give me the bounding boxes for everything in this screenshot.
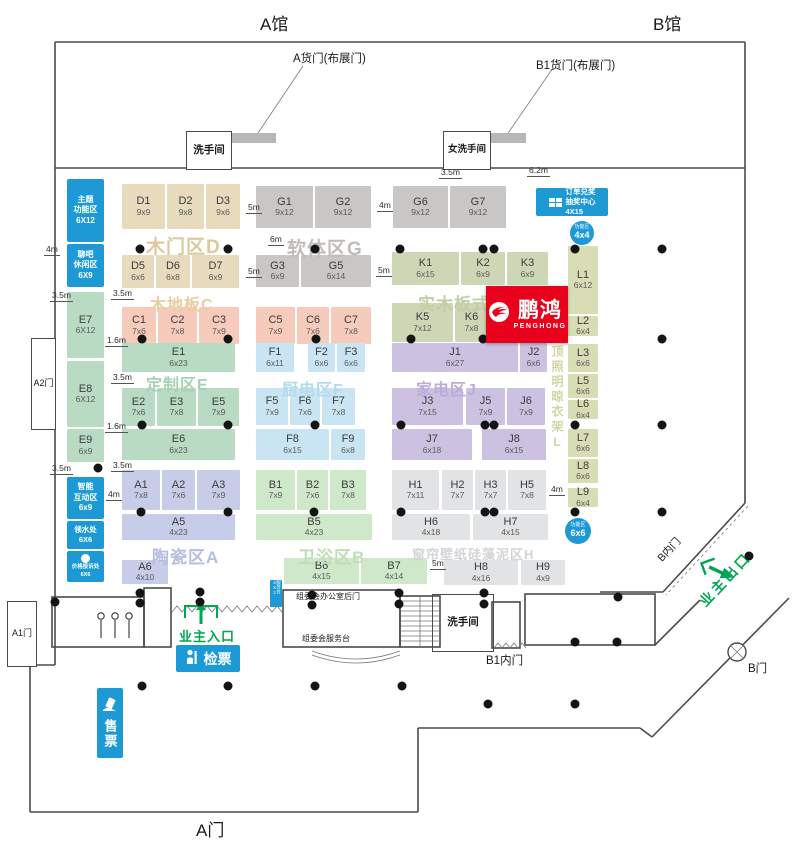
column-dot-20 xyxy=(571,421,580,430)
committee-office-backdoor-label: 组委会办公室后门 xyxy=(296,591,360,602)
gate-a2: A2门 xyxy=(31,338,56,430)
column-dot-30 xyxy=(94,464,103,473)
column-dot-38 xyxy=(308,601,317,610)
committee-service-desk-label: 组委会服务台 xyxy=(302,633,350,644)
ticket-check-label: 检票 xyxy=(204,649,232,669)
column-dot-2 xyxy=(311,245,320,254)
cargo-door-a xyxy=(230,133,276,143)
hall-b-title: B馆 xyxy=(653,10,681,35)
ticket-sell-icon xyxy=(102,697,118,717)
gate-b-label: B门 xyxy=(748,660,767,676)
column-dot-17 xyxy=(397,421,406,430)
column-dot-5 xyxy=(490,245,499,254)
washroom-women: 女洗手间 xyxy=(443,131,491,170)
penghong-latin: PENGHONG xyxy=(514,323,567,330)
ticket-sell-label: 售票 xyxy=(101,719,120,749)
column-dot-23 xyxy=(224,508,233,517)
gate-a1: A1门 xyxy=(7,601,37,667)
column-dot-27 xyxy=(490,508,499,517)
column-dot-50 xyxy=(484,700,493,709)
gate-b1-inner-label: B1内门 xyxy=(486,652,523,668)
column-dot-33 xyxy=(136,589,145,598)
penghong-name: 鹏鸿 xyxy=(518,300,562,321)
column-dot-44 xyxy=(571,638,580,647)
column-dot-25 xyxy=(397,508,406,517)
column-dot-16 xyxy=(311,421,320,430)
small-service-box: 服务台4X3 xyxy=(270,580,282,607)
cargo-door-a-label: A货门(布展门) xyxy=(293,50,366,66)
revolving-door-b-gate xyxy=(728,643,746,661)
column-dot-37 xyxy=(308,591,317,600)
column-dot-3 xyxy=(396,245,405,254)
gate-a-title: A门 xyxy=(196,816,224,841)
column-dot-9 xyxy=(224,335,233,344)
penghong-swirl-icon xyxy=(488,301,510,328)
column-dot-15 xyxy=(224,421,233,430)
cargo-door-b1 xyxy=(488,133,526,143)
column-dot-31 xyxy=(51,598,60,607)
penghong-logo: 鹏鸿 PENGHONG xyxy=(486,286,568,343)
column-dot-48 xyxy=(311,682,320,691)
column-dot-34 xyxy=(136,599,145,608)
column-dot-10 xyxy=(312,335,321,344)
column-dot-19 xyxy=(490,421,499,430)
column-dot-8 xyxy=(138,335,147,344)
column-dot-43 xyxy=(614,593,623,602)
column-dot-4 xyxy=(479,245,488,254)
column-dot-11 xyxy=(407,335,416,344)
cargo-door-b1-label: B1货门(布展门) xyxy=(536,57,615,73)
column-dot-21 xyxy=(658,421,667,430)
ticket-sell-badge: 售票 xyxy=(97,688,123,758)
column-dot-51 xyxy=(571,700,580,709)
washroom-top: 洗手间 xyxy=(186,131,232,170)
exhibition-floor-plan: A馆 B馆 A门 A货门(布展门) B1货门(布展门) 洗手间 女洗手间 A2门… xyxy=(0,0,800,846)
column-dot-1 xyxy=(224,245,233,254)
column-dot-18 xyxy=(481,421,490,430)
column-dot-13 xyxy=(658,335,667,344)
column-dot-6 xyxy=(571,245,580,254)
column-dot-7 xyxy=(658,245,667,254)
column-dot-0 xyxy=(136,245,145,254)
turnstile-icons xyxy=(98,613,132,638)
column-dot-35 xyxy=(196,588,205,597)
column-dot-29 xyxy=(658,508,667,517)
column-dot-46 xyxy=(138,682,147,691)
column-dot-39 xyxy=(395,589,404,598)
column-dot-24 xyxy=(310,508,319,517)
column-dot-45 xyxy=(613,638,622,647)
column-dot-14 xyxy=(138,421,147,430)
ticket-check-badge: 检票 xyxy=(176,645,240,672)
column-dot-49 xyxy=(398,682,407,691)
column-dot-36 xyxy=(196,598,205,607)
hall-a-title: A馆 xyxy=(260,10,288,35)
column-dot-47 xyxy=(224,682,233,691)
column-dot-42 xyxy=(480,600,489,609)
column-dot-40 xyxy=(395,600,404,609)
column-dot-26 xyxy=(481,508,490,517)
column-dot-32 xyxy=(745,552,754,561)
small-service-box-label: 服务台4X3 xyxy=(272,580,281,607)
column-dot-28 xyxy=(571,508,580,517)
column-dot-41 xyxy=(480,589,489,598)
column-dot-22 xyxy=(137,508,146,517)
ticket-check-icon xyxy=(185,649,200,668)
